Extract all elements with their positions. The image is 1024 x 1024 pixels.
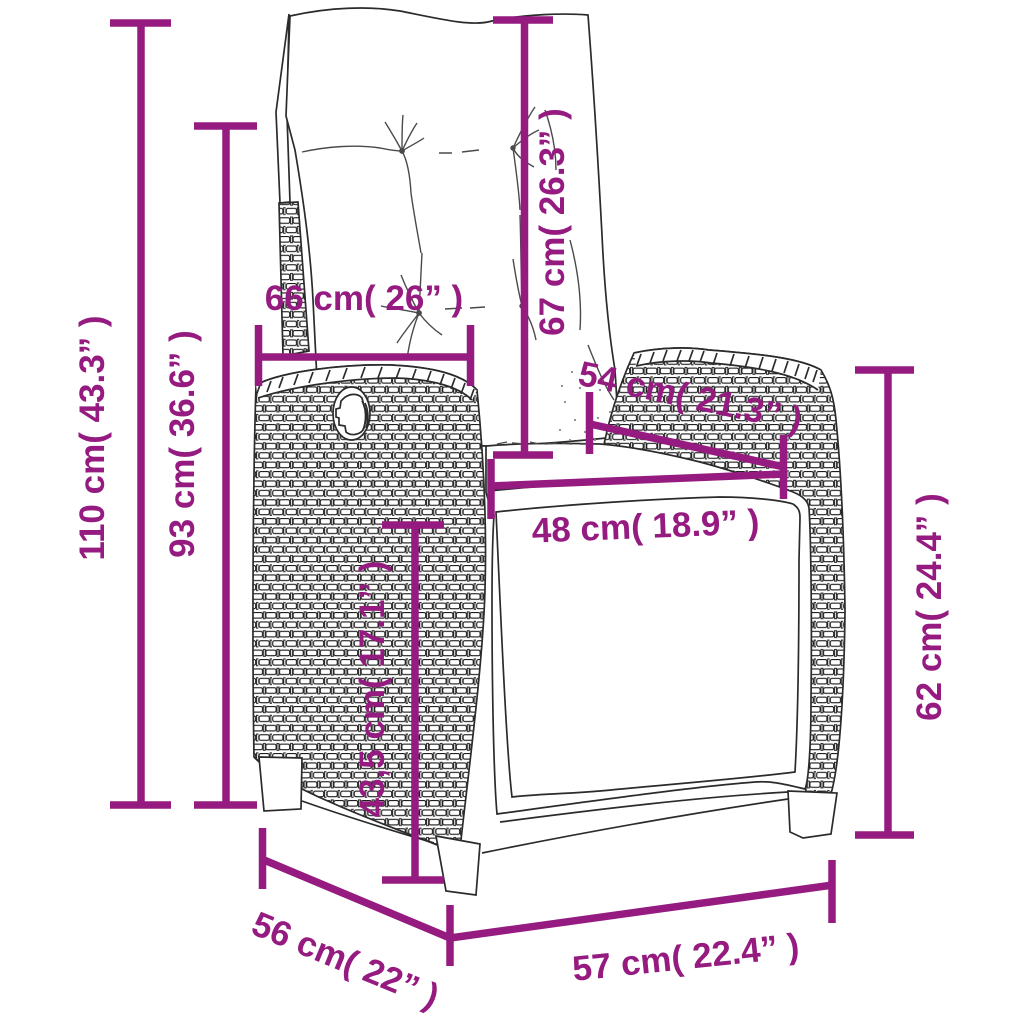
svg-text:110 cm( 43.3” ): 110 cm( 43.3” ) xyxy=(73,315,112,560)
svg-text:43,5 cm( 17.1” ): 43,5 cm( 17.1” ) xyxy=(353,561,392,818)
svg-text:66 cm( 26” ): 66 cm( 26” ) xyxy=(265,279,463,318)
svg-text:93 cm( 36.6” ): 93 cm( 36.6” ) xyxy=(163,330,202,558)
svg-text:67 cm( 26.3” ): 67 cm( 26.3” ) xyxy=(533,108,572,336)
svg-text:62 cm( 24.4” ): 62 cm( 24.4” ) xyxy=(910,493,949,721)
